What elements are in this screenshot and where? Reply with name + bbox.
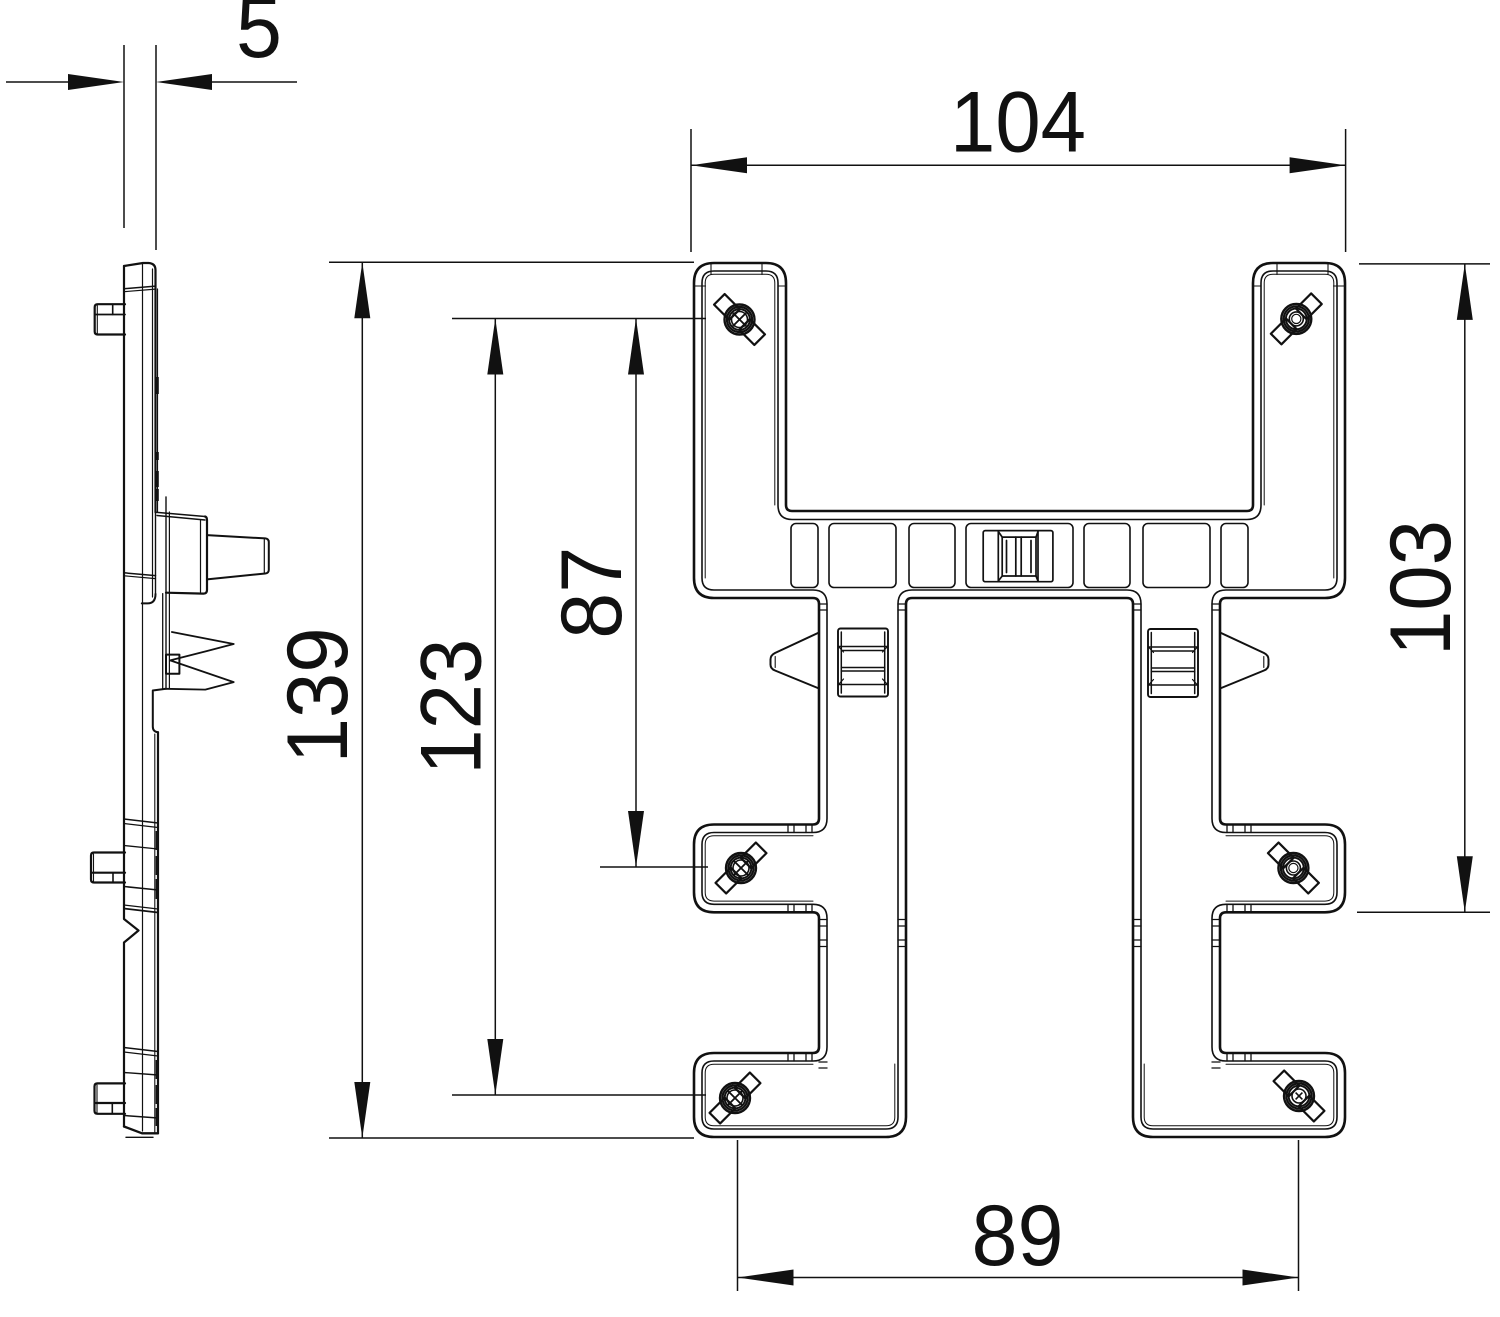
svg-text:139: 139 — [270, 627, 366, 763]
svg-text:123: 123 — [403, 639, 499, 775]
svg-text:89: 89 — [972, 1188, 1064, 1284]
svg-text:5: 5 — [236, 0, 282, 76]
svg-text:104: 104 — [950, 75, 1086, 171]
svg-text:87: 87 — [544, 547, 640, 639]
svg-text:103: 103 — [1373, 520, 1469, 656]
